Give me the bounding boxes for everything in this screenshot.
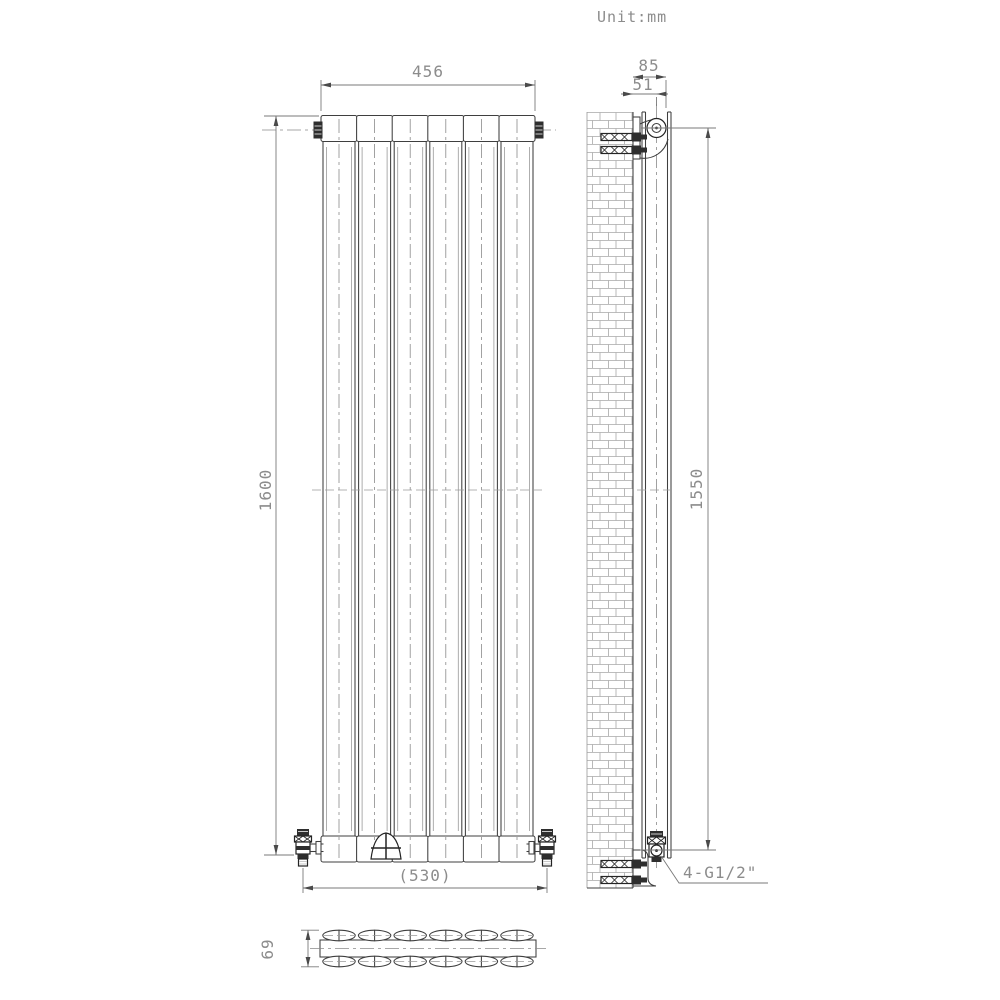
right-end-plug <box>535 122 544 139</box>
dim-width: 456 <box>321 62 535 111</box>
dim-valve-spacing: (530) <box>303 866 547 893</box>
dim-bracket-height: 1550 <box>640 128 716 850</box>
brick-wall <box>587 112 633 888</box>
bottom-fitting <box>648 831 666 862</box>
dim-69-label: 69 <box>258 938 277 959</box>
radiator-profile <box>637 104 676 868</box>
radiator-drawing: 456 1600 (530) <box>0 0 1000 1000</box>
bottom-anchor-bolt-1 <box>601 860 647 869</box>
dim-51-label: 51 <box>632 75 653 94</box>
unit-label: Unit:mm <box>597 8 667 26</box>
dim-height-label: 1600 <box>256 469 275 512</box>
front-panels <box>321 116 535 863</box>
technical-drawing-page: 456 1600 (530) <box>0 0 1000 1000</box>
section-view: 69 <box>258 930 546 967</box>
bottom-anchor-bolt-2 <box>601 876 647 885</box>
front-view: 456 1600 (530) <box>256 62 556 893</box>
side-view: 85 51 1550 4-G1/2" <box>587 56 768 888</box>
dim-1550-label: 1550 <box>687 468 706 511</box>
left-valve <box>295 829 324 866</box>
dim-height: 1600 <box>256 116 319 855</box>
top-anchor-bolt-1 <box>601 133 647 142</box>
connection-label: 4-G1/2" <box>683 863 757 882</box>
dim-85-label: 85 <box>638 56 659 75</box>
dim-depth-51: 51 <box>621 75 668 106</box>
dim-valve-spacing-label: (530) <box>398 866 451 885</box>
top-anchor-bolt-2 <box>601 146 647 155</box>
connection-leader: 4-G1/2" <box>661 856 768 883</box>
dim-width-label: 456 <box>412 62 444 81</box>
dim-section-depth: 69 <box>258 930 319 967</box>
left-end-plug <box>314 122 323 139</box>
